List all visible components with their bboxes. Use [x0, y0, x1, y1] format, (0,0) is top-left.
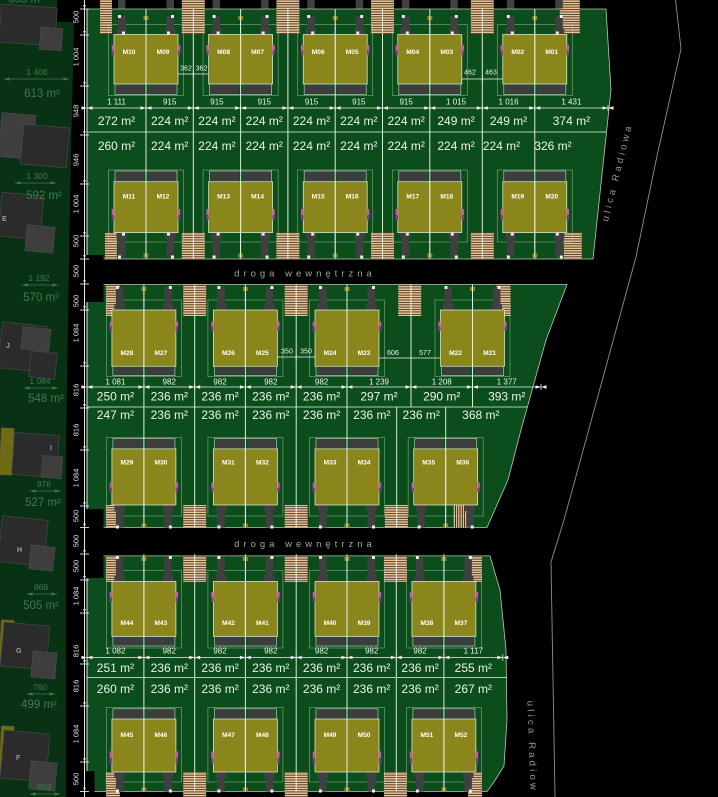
svg-text:M52: M52 — [454, 732, 467, 739]
svg-text:499 m²: 499 m² — [21, 699, 57, 711]
svg-text:1 004: 1 004 — [72, 195, 81, 214]
svg-text:236 m²: 236 m² — [303, 661, 340, 675]
svg-text:816: 816 — [72, 645, 81, 658]
svg-text:500: 500 — [72, 535, 81, 548]
svg-text:462: 462 — [464, 70, 476, 77]
svg-text:500: 500 — [72, 295, 81, 308]
svg-text:M42: M42 — [222, 620, 235, 627]
svg-text:I: I — [50, 445, 52, 452]
svg-text:236 m²: 236 m² — [252, 661, 289, 675]
svg-text:505 m²: 505 m² — [23, 600, 59, 612]
svg-text:224 m²: 224 m² — [387, 139, 424, 153]
svg-text:236 m²: 236 m² — [353, 661, 390, 675]
svg-text:982: 982 — [315, 647, 329, 656]
svg-text:251 m²: 251 m² — [97, 661, 134, 675]
svg-text:236 m²: 236 m² — [303, 408, 340, 422]
svg-text:982: 982 — [163, 378, 177, 387]
svg-text:236 m²: 236 m² — [401, 682, 438, 696]
svg-text:1 084: 1 084 — [72, 469, 81, 488]
svg-text:633 m²: 633 m² — [8, 0, 44, 6]
svg-text:M11: M11 — [123, 194, 136, 201]
svg-text:350: 350 — [300, 349, 312, 356]
svg-text:1 239: 1 239 — [369, 378, 390, 387]
svg-text:982: 982 — [213, 647, 227, 656]
svg-text:M17: M17 — [406, 194, 419, 201]
svg-text:1 084: 1 084 — [72, 324, 81, 343]
svg-text:236 m²: 236 m² — [252, 408, 289, 422]
svg-text:224 m²: 224 m² — [483, 139, 520, 153]
svg-text:272 m²: 272 m² — [98, 114, 135, 128]
svg-text:915: 915 — [258, 98, 272, 107]
svg-text:M10: M10 — [123, 49, 136, 56]
svg-text:M45: M45 — [120, 732, 133, 739]
svg-text:M16: M16 — [346, 194, 359, 201]
svg-text:M14: M14 — [251, 194, 264, 201]
svg-text:368 m²: 368 m² — [462, 408, 499, 422]
svg-text:548 m²: 548 m² — [28, 393, 64, 405]
svg-text:M43: M43 — [154, 620, 167, 627]
svg-text:1 082: 1 082 — [105, 647, 126, 656]
svg-text:236 m²: 236 m² — [201, 390, 238, 404]
svg-text:362: 362 — [180, 66, 192, 73]
svg-text:F: F — [16, 755, 21, 762]
svg-text:982: 982 — [264, 647, 278, 656]
svg-text:659: 659 — [37, 782, 51, 792]
svg-text:1 300: 1 300 — [26, 171, 48, 181]
svg-text:1 111: 1 111 — [107, 98, 126, 107]
svg-text:1 208: 1 208 — [432, 378, 453, 387]
svg-text:1 081: 1 081 — [105, 378, 126, 387]
svg-text:500: 500 — [72, 560, 81, 573]
svg-text:M51: M51 — [420, 732, 433, 739]
svg-text:500: 500 — [72, 235, 81, 248]
svg-text:M13: M13 — [217, 194, 230, 201]
svg-text:236 m²: 236 m² — [403, 408, 440, 422]
svg-text:816: 816 — [72, 680, 81, 693]
svg-text:M36: M36 — [456, 460, 469, 467]
svg-text:M20: M20 — [545, 194, 558, 201]
svg-text:M19: M19 — [511, 194, 524, 201]
svg-text:M18: M18 — [440, 194, 453, 201]
svg-text:500: 500 — [72, 265, 81, 278]
svg-text:droga wewnętrzna: droga wewnętrzna — [234, 269, 376, 280]
svg-text:816: 816 — [72, 384, 81, 397]
svg-text:236 m²: 236 m² — [353, 408, 390, 422]
svg-text:M06: M06 — [312, 49, 325, 56]
svg-text:224 m²: 224 m² — [293, 139, 330, 153]
svg-text:1 377: 1 377 — [497, 378, 518, 387]
svg-text:M21: M21 — [483, 350, 496, 357]
svg-text:976: 976 — [37, 479, 51, 489]
svg-text:606: 606 — [387, 350, 399, 357]
svg-text:236 m²: 236 m² — [151, 408, 188, 422]
svg-text:982: 982 — [213, 378, 227, 387]
svg-text:224 m²: 224 m² — [293, 114, 330, 128]
svg-text:M38: M38 — [420, 620, 433, 627]
svg-text:M05: M05 — [346, 49, 359, 56]
svg-text:M15: M15 — [312, 194, 325, 201]
svg-text:M24: M24 — [324, 350, 337, 357]
svg-text:500: 500 — [72, 773, 81, 786]
svg-text:236 m²: 236 m² — [201, 408, 238, 422]
svg-text:M33: M33 — [324, 460, 337, 467]
svg-text:249 m²: 249 m² — [490, 114, 527, 128]
svg-text:297 m²: 297 m² — [360, 390, 397, 404]
svg-text:260 m²: 260 m² — [98, 139, 135, 153]
svg-text:236 m²: 236 m² — [151, 390, 188, 404]
svg-text:500: 500 — [72, 11, 81, 24]
svg-text:224 m²: 224 m² — [151, 139, 188, 153]
svg-text:1 004: 1 004 — [72, 48, 81, 67]
svg-text:M48: M48 — [256, 732, 269, 739]
svg-text:250 m²: 250 m² — [97, 390, 134, 404]
svg-text:M30: M30 — [154, 460, 167, 467]
svg-text:982: 982 — [163, 647, 177, 656]
svg-text:868: 868 — [34, 582, 48, 592]
svg-text:M35: M35 — [422, 460, 435, 467]
svg-text:236 m²: 236 m² — [151, 682, 188, 696]
svg-text:M27: M27 — [154, 350, 167, 357]
svg-text:M31: M31 — [222, 460, 235, 467]
svg-text:236 m²: 236 m² — [201, 661, 238, 675]
svg-text:J: J — [6, 343, 10, 350]
svg-text:224 m²: 224 m² — [340, 139, 377, 153]
svg-text:M41: M41 — [256, 620, 269, 627]
svg-text:236 m²: 236 m² — [201, 682, 238, 696]
svg-text:592 m²: 592 m² — [26, 190, 62, 202]
svg-text:M39: M39 — [358, 620, 371, 627]
svg-text:M09: M09 — [157, 49, 170, 56]
svg-text:224 m²: 224 m² — [198, 114, 235, 128]
svg-text:224 m²: 224 m² — [246, 139, 283, 153]
svg-text:982: 982 — [413, 647, 427, 656]
svg-text:G: G — [16, 648, 22, 655]
svg-text:M47: M47 — [222, 732, 235, 739]
svg-text:1 016: 1 016 — [499, 98, 520, 107]
svg-text:915: 915 — [399, 98, 413, 107]
svg-text:M37: M37 — [454, 620, 467, 627]
svg-text:M46: M46 — [154, 732, 167, 739]
svg-text:982: 982 — [264, 378, 278, 387]
svg-text:577: 577 — [419, 350, 431, 357]
svg-text:M12: M12 — [157, 194, 170, 201]
svg-text:267 m²: 267 m² — [455, 682, 492, 696]
svg-text:224 m²: 224 m² — [246, 114, 283, 128]
svg-text:M22: M22 — [449, 350, 462, 357]
svg-text:915: 915 — [305, 98, 319, 107]
svg-text:236 m²: 236 m² — [252, 682, 289, 696]
svg-text:915: 915 — [352, 98, 366, 107]
svg-text:M04: M04 — [406, 49, 419, 56]
svg-text:236 m²: 236 m² — [353, 682, 390, 696]
svg-text:915: 915 — [163, 98, 177, 107]
svg-text:E: E — [2, 216, 7, 223]
svg-text:816: 816 — [72, 424, 81, 437]
svg-text:M28: M28 — [120, 350, 133, 357]
svg-text:1 015: 1 015 — [446, 98, 467, 107]
svg-text:236 m²: 236 m² — [252, 390, 289, 404]
svg-text:1 084: 1 084 — [72, 725, 81, 744]
svg-text:M01: M01 — [545, 49, 558, 56]
svg-text:M25: M25 — [256, 350, 269, 357]
svg-text:1 084: 1 084 — [29, 376, 51, 386]
svg-text:290 m²: 290 m² — [423, 390, 460, 404]
svg-text:droga wewnętrzna: droga wewnętrzna — [234, 539, 376, 550]
svg-text:1 084: 1 084 — [72, 587, 81, 606]
svg-text:500: 500 — [72, 510, 81, 523]
svg-text:M29: M29 — [120, 460, 133, 467]
svg-text:224 m²: 224 m² — [151, 114, 188, 128]
svg-text:1 408: 1 408 — [26, 67, 48, 77]
svg-text:948: 948 — [72, 105, 81, 118]
svg-text:M07: M07 — [251, 49, 264, 56]
svg-text:M23: M23 — [358, 350, 371, 357]
svg-text:760: 760 — [33, 682, 47, 692]
svg-text:350: 350 — [281, 349, 293, 356]
svg-text:527 m²: 527 m² — [25, 497, 61, 509]
svg-text:260 m²: 260 m² — [97, 682, 134, 696]
svg-text:M40: M40 — [324, 620, 337, 627]
svg-text:570 m²: 570 m² — [23, 292, 59, 304]
svg-text:326 m²: 326 m² — [534, 139, 571, 153]
svg-text:M44: M44 — [120, 620, 133, 627]
svg-text:1 192: 1 192 — [28, 273, 50, 283]
svg-text:255 m²: 255 m² — [455, 661, 492, 675]
svg-text:1 431: 1 431 — [561, 98, 582, 107]
svg-text:H: H — [17, 547, 22, 554]
svg-text:463: 463 — [485, 70, 497, 77]
svg-text:613 m²: 613 m² — [24, 88, 60, 100]
svg-text:236 m²: 236 m² — [303, 682, 340, 696]
svg-text:M08: M08 — [217, 49, 230, 56]
svg-text:236 m²: 236 m² — [151, 661, 188, 675]
svg-text:224 m²: 224 m² — [387, 114, 424, 128]
svg-text:224 m²: 224 m² — [198, 139, 235, 153]
svg-text:M34: M34 — [358, 460, 371, 467]
svg-text:M49: M49 — [324, 732, 337, 739]
svg-text:M32: M32 — [256, 460, 269, 467]
svg-text:249 m²: 249 m² — [437, 114, 474, 128]
svg-text:224 m²: 224 m² — [437, 139, 474, 153]
svg-text:M26: M26 — [222, 350, 235, 357]
svg-text:M03: M03 — [440, 49, 453, 56]
svg-text:M50: M50 — [358, 732, 371, 739]
svg-text:915: 915 — [210, 98, 224, 107]
svg-text:236 m²: 236 m² — [401, 661, 438, 675]
svg-text:374 m²: 374 m² — [553, 114, 590, 128]
svg-text:224 m²: 224 m² — [340, 114, 377, 128]
svg-text:1 117: 1 117 — [464, 647, 484, 656]
svg-text:946: 946 — [72, 154, 81, 167]
svg-text:236 m²: 236 m² — [303, 390, 340, 404]
svg-text:982: 982 — [365, 647, 379, 656]
svg-text:982: 982 — [315, 378, 329, 387]
svg-text:393 m²: 393 m² — [488, 390, 525, 404]
svg-text:247 m²: 247 m² — [97, 408, 134, 422]
svg-text:M02: M02 — [511, 49, 524, 56]
svg-text:362: 362 — [196, 66, 208, 73]
